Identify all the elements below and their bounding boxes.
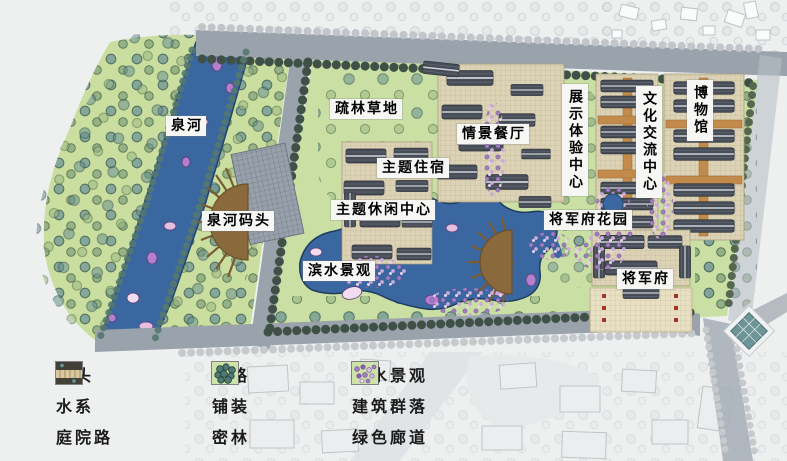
label-general-mansion: 将军府 (617, 269, 673, 289)
legend-item-label: 铺装 (212, 393, 250, 417)
dense-forest-icon (212, 362, 238, 384)
legend: 码头 水系 庭院路 (0, 358, 787, 461)
legend-item: 庭院路 (56, 424, 113, 448)
courtyard-road-icon (56, 362, 82, 384)
legend-item: 建筑群落 (352, 393, 428, 417)
label-general-mansion-garden: 将军府花园 (544, 210, 632, 230)
label-quanhe-wharf: 泉河码头 (202, 211, 274, 231)
legend-item-label: 密林 (212, 424, 250, 448)
legend-item: 铺装 (212, 393, 250, 417)
label-museum: 博物馆 (687, 80, 713, 141)
legend-item: 密林 (212, 424, 250, 448)
legend-item-label: 水系 (56, 393, 94, 417)
site-master-plan: 泉河 泉河码头 疏林草地 情景餐厅 主题住宿 主题休闲中心 滨水景观 展示体验中… (0, 0, 787, 461)
label-cultural-exchange-center: 文化交流中心 (636, 86, 662, 198)
label-scene-restaurant: 情景餐厅 (457, 124, 529, 144)
label-theme-lodging: 主题住宿 (377, 158, 449, 178)
label-waterfront-landscape: 滨水景观 (303, 261, 375, 281)
legend-item: 水系 (56, 393, 113, 417)
label-quanhe-river: 泉河 (166, 116, 206, 136)
legend-column-3: 滨水景观 建筑群落 绿色廊 (352, 362, 428, 448)
green-corridor-icon (352, 362, 378, 384)
legend-item-label: 庭院路 (56, 424, 113, 448)
legend-item-label: 绿色廊道 (352, 424, 428, 448)
legend-item: 绿色廊道 (352, 424, 428, 448)
label-theme-leisure-center: 主题休闲中心 (331, 200, 435, 220)
label-exhibition-experience-center: 展示体验中心 (562, 84, 588, 196)
legend-column-2: 道路 铺装 密林 (212, 362, 250, 448)
legend-item-label: 建筑群落 (352, 393, 428, 417)
legend-column-1: 码头 水系 庭院路 (56, 362, 113, 448)
label-sparse-forest-meadow: 疏林草地 (330, 99, 402, 119)
